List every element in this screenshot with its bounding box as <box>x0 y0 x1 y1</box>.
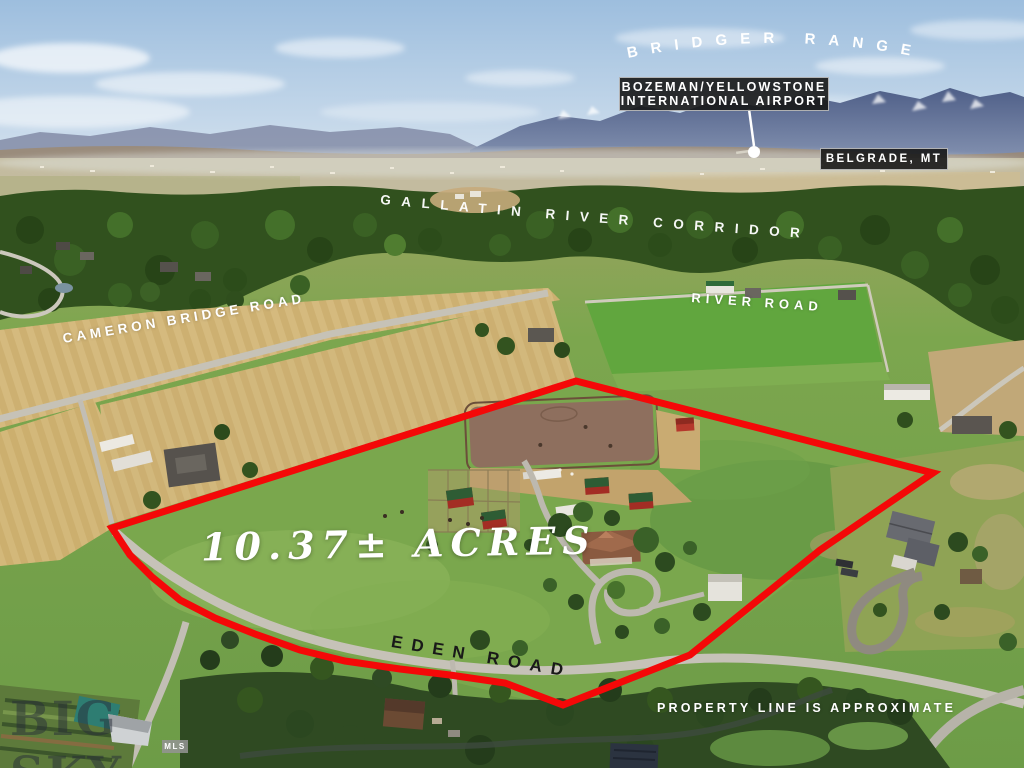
airport-pointer-dot <box>748 146 760 158</box>
city-callout: BELGRADE, MT <box>820 148 948 170</box>
airport-callout: BOZEMAN/YELLOWSTONE INTERNATIONAL AIRPOR… <box>619 77 829 111</box>
mountain-range-label: BRIDGER RANGE <box>626 30 925 62</box>
airport-pointer-line <box>749 109 754 146</box>
river-corridor-label: GALLATIN RIVER CORRIDOR <box>380 192 811 241</box>
acreage-label: 10.37± ACRES <box>201 518 598 570</box>
mls-watermark-brand: BIG SKY <box>10 692 123 768</box>
mls-watermark: BIG SKY MLS <box>10 692 210 762</box>
airport-callout-line1: BOZEMAN/YELLOWSTONE <box>622 80 827 95</box>
city-callout-label: BELGRADE, MT <box>826 153 942 165</box>
property-line-disclaimer: PROPERTY LINE IS APPROXIMATE <box>657 701 956 715</box>
mls-badge: MLS <box>162 740 188 753</box>
aerial-listing-photo: BRIDGER RANGE GALLATIN RIVER CORRIDOR BO… <box>0 0 1024 768</box>
airport-callout-line2: INTERNATIONAL AIRPORT <box>621 94 827 109</box>
